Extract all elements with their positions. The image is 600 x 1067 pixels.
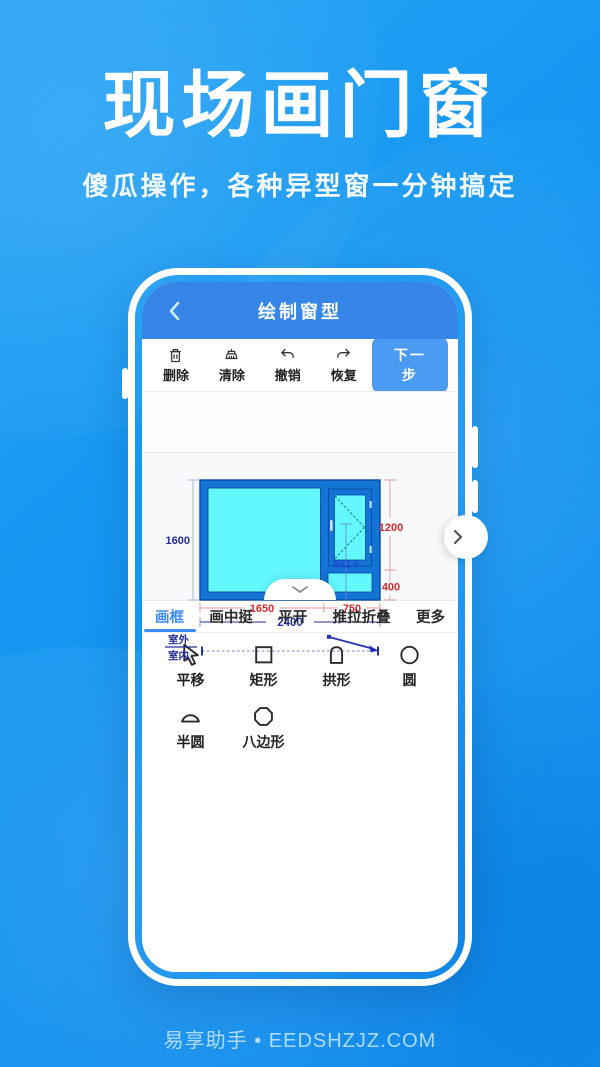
chevron-left-icon <box>168 301 180 321</box>
dim-total-height: 1600 <box>166 535 190 547</box>
tab-mullion[interactable]: 画中挺 <box>209 601 253 632</box>
chevron-right-icon <box>453 529 463 545</box>
page-title: 现场画门窗 <box>0 66 600 146</box>
dim-sash-height: 1200 <box>379 522 403 534</box>
toolbar-label: 清除 <box>219 365 245 384</box>
undo-button[interactable]: 撤销 <box>260 347 316 384</box>
hero-section: 现场画门窗 傻瓜操作，各种异型窗一分钟搞定 <box>0 66 600 203</box>
bottom-glass-panel <box>328 573 372 592</box>
trash-icon <box>167 347 184 364</box>
inside-label: 室内 <box>168 649 189 662</box>
promo-page: 现场画门窗 傻瓜操作，各种异型窗一分钟搞定 绘制窗型 <box>0 0 600 1067</box>
phone-mockup: 绘制窗型 删除 清除 <box>128 268 472 986</box>
tab-label: 画框 <box>155 606 184 627</box>
phone-side-button <box>472 426 478 468</box>
redo-button[interactable]: 恢复 <box>316 347 372 384</box>
casement-glass <box>335 495 366 560</box>
brush-icon <box>223 347 240 364</box>
tool-label: 半圆 <box>177 732 205 752</box>
redo-icon <box>335 347 352 364</box>
tab-casement[interactable]: 平开 <box>278 601 307 632</box>
tool-octagon[interactable]: 八边形 <box>243 703 285 765</box>
edit-toolbar: 删除 清除 撤销 <box>142 339 458 391</box>
app-screen: 绘制窗型 删除 清除 <box>142 282 458 972</box>
watermark-text: 易享助手 • EEDSHZJZ.COM <box>0 1024 600 1053</box>
drawing-canvas[interactable]: 992.5 1600 1200 400 1650 750 <box>142 391 458 600</box>
tab-label: 更多 <box>416 606 445 627</box>
next-step-button[interactable]: 下一步 <box>372 337 448 393</box>
app-header: 绘制窗型 <box>142 282 458 339</box>
dim-sash-measure: 992.5 <box>333 559 359 571</box>
clear-button[interactable]: 清除 <box>204 347 260 384</box>
expand-drawer-button[interactable] <box>444 515 488 559</box>
hinge-mark <box>370 501 372 508</box>
tab-more[interactable]: 更多 <box>416 601 445 632</box>
screen-title: 绘制窗型 <box>258 298 342 324</box>
delete-button[interactable]: 删除 <box>148 347 204 384</box>
tool-label: 八边形 <box>243 732 285 752</box>
dim-left-panel-width: 1650 <box>250 603 274 615</box>
collapse-panel-handle[interactable] <box>264 579 336 600</box>
toolbar-label: 恢复 <box>331 365 357 384</box>
toolbar-label: 撤销 <box>275 365 301 384</box>
outside-label: 室外 <box>168 633 189 646</box>
window-handle <box>330 520 333 531</box>
swing-direction-arrow <box>329 637 372 649</box>
tab-frame[interactable]: 画框 <box>155 601 184 632</box>
page-subtitle: 傻瓜操作，各种异型窗一分钟搞定 <box>0 166 600 203</box>
phone-side-button <box>122 368 128 399</box>
back-button[interactable] <box>156 282 192 339</box>
tab-sliding-folding[interactable]: 推拉折叠 <box>333 601 391 632</box>
undo-icon <box>279 347 296 364</box>
tab-label: 平开 <box>278 606 307 627</box>
tool-semicircle[interactable]: 半圆 <box>177 703 205 765</box>
chevron-down-icon <box>291 585 309 594</box>
phone-side-button <box>472 480 478 513</box>
arrow-start-dot <box>327 635 331 639</box>
tab-label: 画中挺 <box>209 606 253 627</box>
tab-label: 推拉折叠 <box>333 606 391 627</box>
toolbar-label: 删除 <box>163 365 189 384</box>
left-glass-panel <box>208 488 321 592</box>
dim-bottom-panel-height: 400 <box>382 582 400 594</box>
hinge-mark <box>370 546 372 553</box>
